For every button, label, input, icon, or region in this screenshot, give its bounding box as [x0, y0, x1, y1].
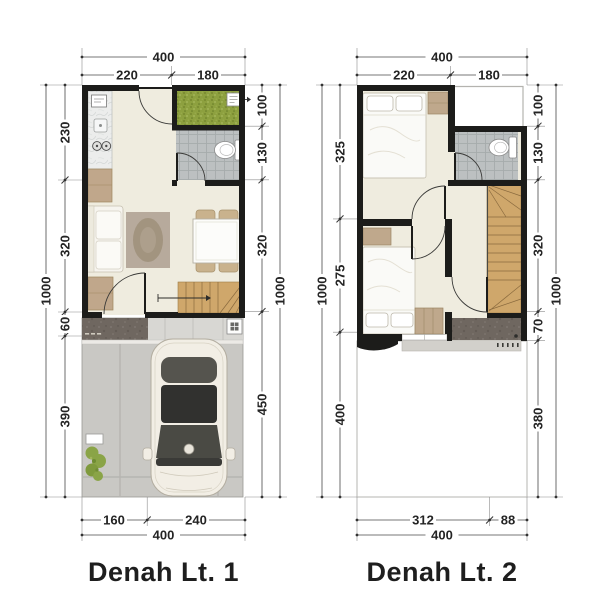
sofa-symbol [86, 206, 123, 272]
dim-label: 320 [531, 235, 546, 257]
car-roof [161, 385, 217, 423]
dim-label: 240 [185, 513, 207, 528]
dim-label: 220 [116, 68, 138, 83]
plan2-dims-top: 400 220 180 [356, 48, 529, 85]
dim-label: 88 [501, 513, 515, 528]
stairs-level2 [487, 183, 521, 313]
car-mirror-right [226, 448, 235, 460]
dim-label: 312 [412, 513, 434, 528]
plan1-title: Denah Lt. 1 [88, 557, 239, 587]
bathroom2-floor [455, 132, 518, 180]
floorplan-page: 400 220 180 160 240 400 [0, 0, 600, 613]
car-rear-window [161, 357, 217, 383]
dim-label: 180 [478, 68, 500, 83]
floorplan-drawing: 400 220 180 160 240 400 [0, 0, 600, 613]
pillow [396, 96, 422, 111]
dresser [363, 228, 391, 245]
dim-label: 1000 [39, 277, 54, 306]
dim-label: 400 [153, 528, 175, 543]
plan2-dims-bottom: 312 88 400 [356, 497, 529, 543]
dim-label: 1000 [273, 277, 288, 306]
porch-dark-tile [82, 318, 148, 340]
dining-table-symbol [193, 210, 240, 272]
dim-label: 220 [393, 68, 415, 83]
bed-symbol-2 [363, 247, 415, 334]
bathroom-1 [176, 130, 243, 180]
dim-label: 100 [531, 95, 546, 117]
void-over-yard [452, 85, 524, 127]
drain-arrow [247, 97, 251, 102]
dim-label: 400 [431, 50, 453, 65]
void-over-carport [357, 341, 527, 497]
kitchen [88, 91, 112, 202]
dim-label: 450 [255, 394, 270, 416]
dim-label: 160 [103, 513, 125, 528]
drain-box [227, 319, 242, 334]
kitchen-cabinet [88, 169, 112, 202]
dim-label: 230 [58, 122, 73, 144]
car-symbol [143, 339, 235, 496]
dim-label: 325 [333, 141, 348, 163]
dim-label: 1000 [315, 277, 330, 306]
plan1-dims-left: 230 320 60 390 1000 [39, 84, 83, 499]
plan-1: 400 220 180 160 240 400 [39, 48, 288, 587]
pillow [367, 96, 393, 111]
pillow [391, 313, 413, 327]
car-logo [184, 444, 194, 454]
dim-label: 130 [531, 142, 546, 164]
plan2-dims-left: 325 275 400 1000 [315, 84, 358, 499]
plan1-dims-bottom: 160 240 400 [81, 497, 247, 543]
dim-label: 1000 [549, 277, 564, 306]
kitchen-appliance [92, 95, 107, 107]
car-mirror-left [143, 448, 152, 460]
landing-tile [452, 318, 521, 340]
dim-label: 400 [333, 404, 348, 426]
wardrobe [415, 308, 443, 334]
dim-label: 100 [255, 95, 270, 117]
dim-label: 275 [333, 265, 348, 287]
dim-label: 70 [531, 319, 546, 333]
bathroom-2 [455, 132, 518, 180]
rug-symbol [126, 212, 170, 268]
plan1-dims-top: 400 220 180 [81, 48, 247, 85]
dim-label: 400 [431, 528, 453, 543]
pillow [366, 313, 388, 327]
plan-2: 400 220 180 312 88 400 [315, 48, 564, 587]
plan1-dims-right: 100 130 320 450 1000 [245, 84, 288, 499]
dim-label: 380 [531, 408, 546, 430]
dim-label: 60 [58, 317, 73, 331]
plan2-dims-right: 100 130 320 70 380 1000 [527, 84, 564, 499]
car-cowl [156, 458, 222, 466]
plan2-title: Denah Lt. 2 [366, 557, 517, 587]
dim-label: 400 [153, 50, 175, 65]
bed-symbol-1 [363, 93, 426, 178]
toilet-symbol [215, 140, 243, 160]
dim-label: 320 [255, 235, 270, 257]
dim-label: 130 [255, 142, 270, 164]
dim-label: 180 [197, 68, 219, 83]
dim-label: 390 [58, 406, 73, 428]
dim-label: 320 [58, 235, 73, 257]
